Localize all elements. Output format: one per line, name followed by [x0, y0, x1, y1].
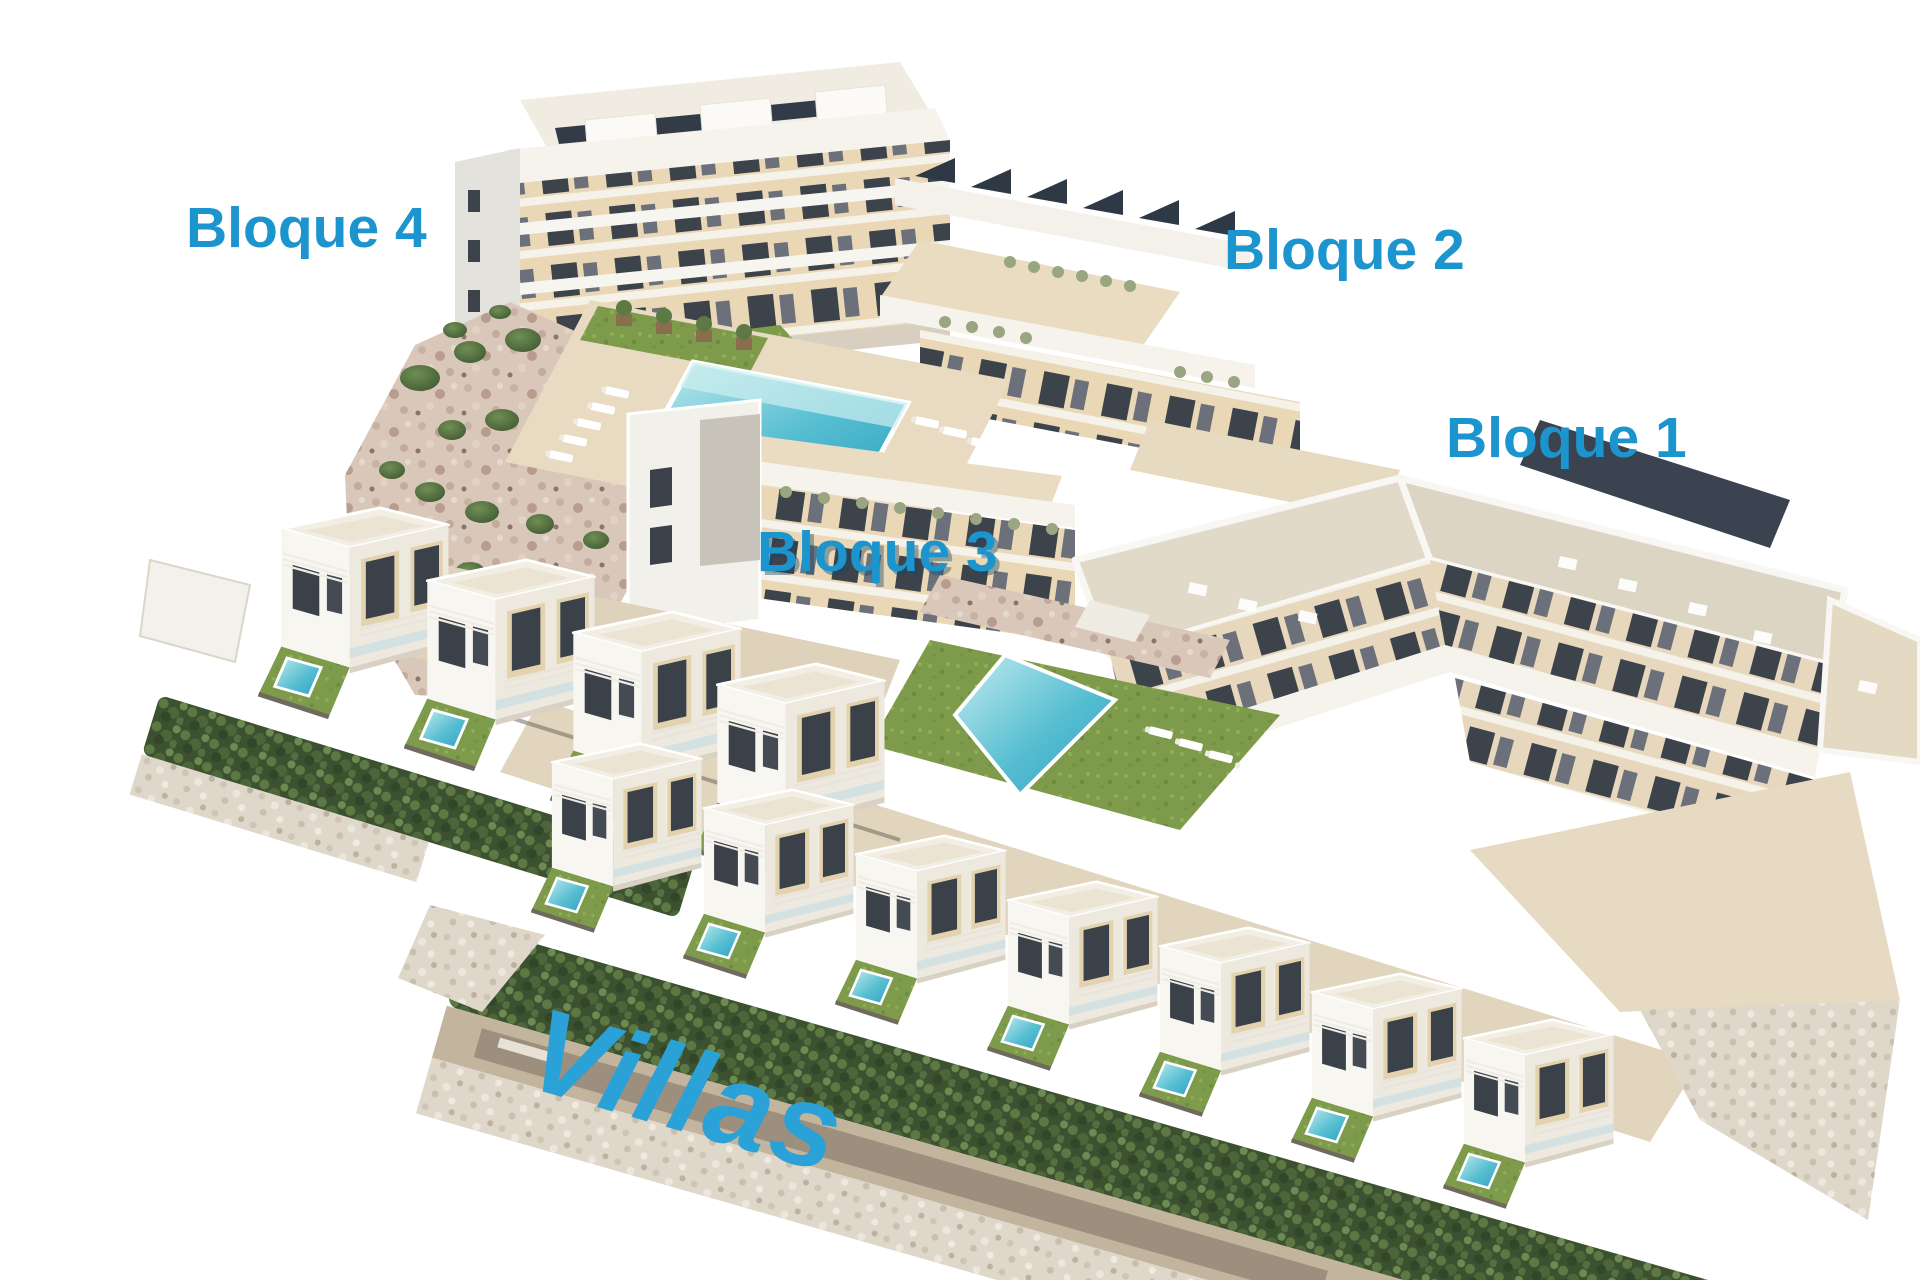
east-gravel-bank [1640, 1000, 1900, 1220]
site-illustration [0, 0, 1920, 1280]
label-bloque-4: Bloque 4 [186, 200, 427, 257]
label-bloque-1: Bloque 1 [1446, 410, 1687, 467]
east-ground [1470, 772, 1900, 1012]
label-bloque-3: Bloque 3 [757, 524, 998, 581]
label-bloque-2: Bloque 2 [1224, 222, 1465, 279]
development-render: Bloque 4 Bloque 2 Bloque 1 Bloque 3 Vill… [0, 0, 1920, 1280]
